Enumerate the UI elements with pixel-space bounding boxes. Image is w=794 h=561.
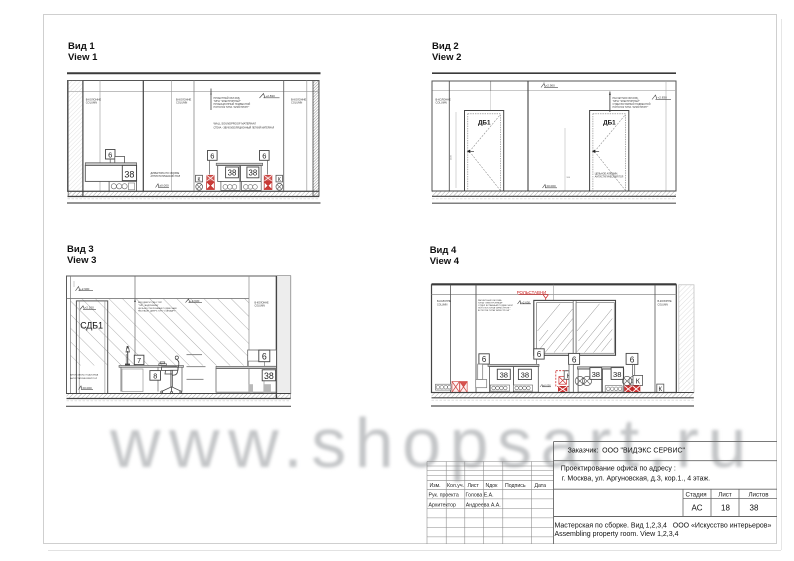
svg-text:СДБ1: СДБ1 xyxy=(80,321,103,331)
svg-text:6: 6 xyxy=(482,355,486,364)
svg-text:Листов: Листов xyxy=(748,491,769,498)
svg-text:6: 6 xyxy=(108,150,112,159)
svg-text:СТЕНА - ЗВУКОИЗОЛЯЦИОННЫЙ ЛЕГК: СТЕНА - ЗВУКОИЗОЛЯЦИОННЫЙ ЛЕГКИЙ МАТЕРИА… xyxy=(214,127,275,130)
svg-text:900: 900 xyxy=(567,177,571,179)
svg-text:Заказчик: ООО "ВИДЭКС СЕРВИС": Заказчик: ООО "ВИДЭКС СЕРВИС" xyxy=(568,448,686,455)
svg-text:Архитектор: Архитектор xyxy=(429,502,457,508)
svg-text:АНТИСТАТИЧЕСКИЙ ПОЛ: АНТИСТАТИЧЕСКИЙ ПОЛ xyxy=(70,377,98,380)
svg-text:COLUMN: COLUMN xyxy=(86,101,97,105)
svg-text:6: 6 xyxy=(630,355,635,364)
svg-text:Assembling property room. View: Assembling property room. View 1,2,3,4 xyxy=(555,531,679,538)
svg-text:COLUMN: COLUMN xyxy=(437,303,448,306)
svg-text:7: 7 xyxy=(137,356,141,365)
svg-text:±0.000: ±0.000 xyxy=(160,184,169,188)
svg-text:ДБ1: ДБ1 xyxy=(478,120,491,127)
svg-text:Мастерская по сборке. Вид 1,2,: Мастерская по сборке. Вид 1,2,3,4 ООО «И… xyxy=(555,521,772,529)
svg-text:6: 6 xyxy=(262,352,267,362)
svg-text:WALL SOUNDPROOF МАТЕРИАЛ: WALL SOUNDPROOF МАТЕРИАЛ xyxy=(214,121,257,125)
svg-text:6: 6 xyxy=(537,350,541,359)
svg-text:38: 38 xyxy=(521,371,529,380)
svg-text:ОТДЕЛ ВСТАВНЫЙ ПОДВЕСНОЙ: ОТДЕЛ ВСТАВНЫЙ ПОДВЕСНОЙ xyxy=(478,304,513,307)
svg-text:АС: АС xyxy=(692,503,703,512)
svg-text:8: 8 xyxy=(153,372,157,381)
svg-text:Андреева А.А.: Андреева А.А. xyxy=(466,502,501,508)
svg-text:ДБ1: ДБ1 xyxy=(603,120,616,127)
svg-text:ПОТОЛОК ТИПА "АРМСТРОНГ": ПОТОЛОК ТИПА "АРМСТРОНГ" xyxy=(214,106,250,109)
svg-text:ПОТОЛОК ТИПА "АРМСТРОНГ": ПОТОЛОК ТИПА "АРМСТРОНГ" xyxy=(478,307,511,310)
svg-text:COLUMN: COLUMN xyxy=(436,101,447,105)
svg-text:Дата: Дата xyxy=(535,483,547,489)
svg-text:+2.900: +2.900 xyxy=(80,287,90,291)
svg-text:К: К xyxy=(278,177,281,183)
svg-text:Голова Е.А.: Голова Е.А. xyxy=(466,493,494,499)
svg-text:Изм.: Изм. xyxy=(430,483,441,489)
svg-text:±0.000: ±0.000 xyxy=(543,384,551,387)
svg-text:38: 38 xyxy=(500,371,508,380)
svg-text:38: 38 xyxy=(264,371,274,381)
svg-text:Подпись: Подпись xyxy=(505,483,526,489)
svg-text:Лист: Лист xyxy=(468,483,480,489)
svg-text:±0.000: ±0.000 xyxy=(83,386,92,390)
svg-text:РОЛЬСТАВНИ: РОЛЬСТАВНИ xyxy=(517,290,547,295)
svg-text:COLUMN: COLUMN xyxy=(255,305,266,308)
svg-text:+2.900: +2.900 xyxy=(546,84,556,88)
svg-text:Лист: Лист xyxy=(718,491,732,498)
svg-text:АНТИСТАТИЧЕСКИЙ ПОЛ: АНТИСТАТИЧЕСКИЙ ПОЛ xyxy=(151,175,181,178)
svg-text:Кол.уч.: Кол.уч. xyxy=(447,483,464,489)
svg-text:+2.630: +2.630 xyxy=(190,299,200,303)
svg-text:ТИПА "ЭЛЕКТРОННЫЙ": ТИПА "ЭЛЕКТРОННЫЙ" xyxy=(478,301,503,304)
svg-text:ВИД ДВЕРИ СДБ1 ТИП: ВИД ДВЕРИ СДБ1 ТИП xyxy=(138,302,162,304)
svg-text:АНТИСТАТИЧЕСКИЙ ПОЛ: АНТИСТАТИЧЕСКИЙ ПОЛ xyxy=(595,176,624,179)
svg-text:38: 38 xyxy=(249,169,258,178)
svg-text:38: 38 xyxy=(592,370,600,379)
svg-text:38: 38 xyxy=(613,370,621,379)
svg-text:COLUMN: COLUMN xyxy=(658,303,669,306)
svg-text:18: 18 xyxy=(721,503,730,512)
svg-text:+2.830: +2.830 xyxy=(266,94,276,98)
svg-text:г. Москва, ул. Аргуновская, д.: г. Москва, ул. Аргуновская, д.3, кор.1.,… xyxy=(562,475,710,482)
svg-text:ЦЕЛЬНОСТЕКЛЯННАЯ ПОДВЕСНАЯ: ЦЕЛЬНОСТЕКЛЯННАЯ ПОДВЕСНАЯ xyxy=(138,307,177,310)
svg-text:COLUMN: COLUMN xyxy=(291,101,302,105)
svg-text:ВСПОЛЗЕ ТИПА "АРМСТРОНГ": ВСПОЛЗЕ ТИПА "АРМСТРОНГ" xyxy=(478,309,511,312)
svg-text:+2.630: +2.630 xyxy=(521,300,530,304)
svg-text:6: 6 xyxy=(572,355,577,364)
svg-text:РАСПАШН. ДВЕРЬ ТИП "СТАНДАРТ": РАСПАШН. ДВЕРЬ ТИП "СТАНДАРТ" xyxy=(138,310,176,313)
svg-text:2100: 2100 xyxy=(451,154,453,160)
svg-text:±0.000: ±0.000 xyxy=(547,184,556,188)
svg-text:К: К xyxy=(659,387,663,393)
svg-text:АНТИСТАТИЧ. ПОДЛОЖКА: АНТИСТАТИЧ. ПОДЛОЖКА xyxy=(70,374,99,377)
svg-text:COLUMN: COLUMN xyxy=(176,101,187,105)
svg-text:К: К xyxy=(198,177,201,183)
svg-text:ЦЕЛЬНОЕ АЛЮМИН.: ЦЕЛЬНОЕ АЛЮМИН. xyxy=(595,172,618,175)
svg-text:6: 6 xyxy=(210,152,214,161)
svg-text:+2.100: +2.100 xyxy=(85,306,95,310)
svg-text:Nдок: Nдок xyxy=(486,483,499,489)
svg-text:РАСЧЕТНЫЙ ОБЛ.РАБ.: РАСЧЕТНЫЙ ОБЛ.РАБ. xyxy=(478,299,503,302)
svg-text:38: 38 xyxy=(228,169,237,178)
svg-text:ПОТОЛОК ТИПА "АРМСТРОНГ": ПОТОЛОК ТИПА "АРМСТРОНГ" xyxy=(613,106,649,109)
svg-text:+2.830: +2.830 xyxy=(658,96,668,100)
svg-text:Стадия: Стадия xyxy=(685,491,706,498)
svg-text:38: 38 xyxy=(750,503,759,512)
svg-text:38: 38 xyxy=(124,170,134,180)
svg-text:6: 6 xyxy=(262,152,266,161)
svg-text:Проектирование офиса по адресу: Проектирование офиса по адресу : xyxy=(561,466,676,473)
svg-text:Рук. проекта: Рук. проекта xyxy=(429,493,459,499)
svg-text:"ТИП "АНДРЕЕВКА": "ТИП "АНДРЕЕВКА" xyxy=(138,304,159,307)
